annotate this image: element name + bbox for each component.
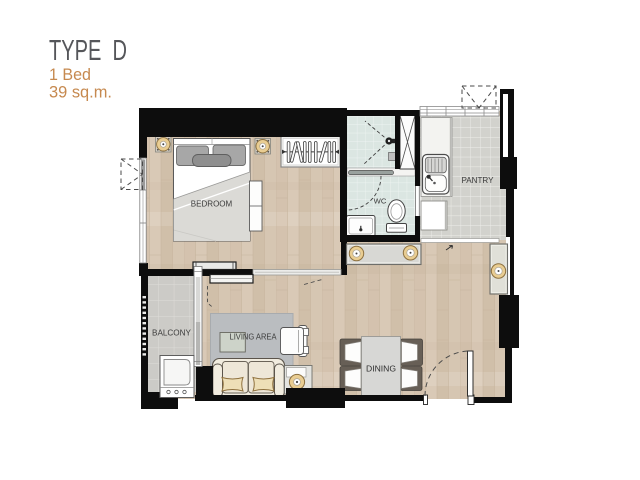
svg-text:DINING: DINING [366, 364, 396, 374]
svg-text:WC: WC [374, 197, 387, 206]
svg-text:TYPE D: TYPE D [49, 35, 127, 67]
svg-text:39 sq.m.: 39 sq.m. [49, 84, 112, 102]
svg-text:BALCONY: BALCONY [152, 329, 192, 338]
svg-text:1 Bed: 1 Bed [49, 66, 91, 84]
svg-text:BEDROOM: BEDROOM [191, 199, 233, 209]
svg-text:LIVING AREA: LIVING AREA [230, 332, 277, 342]
svg-text:PANTRY: PANTRY [462, 175, 494, 185]
